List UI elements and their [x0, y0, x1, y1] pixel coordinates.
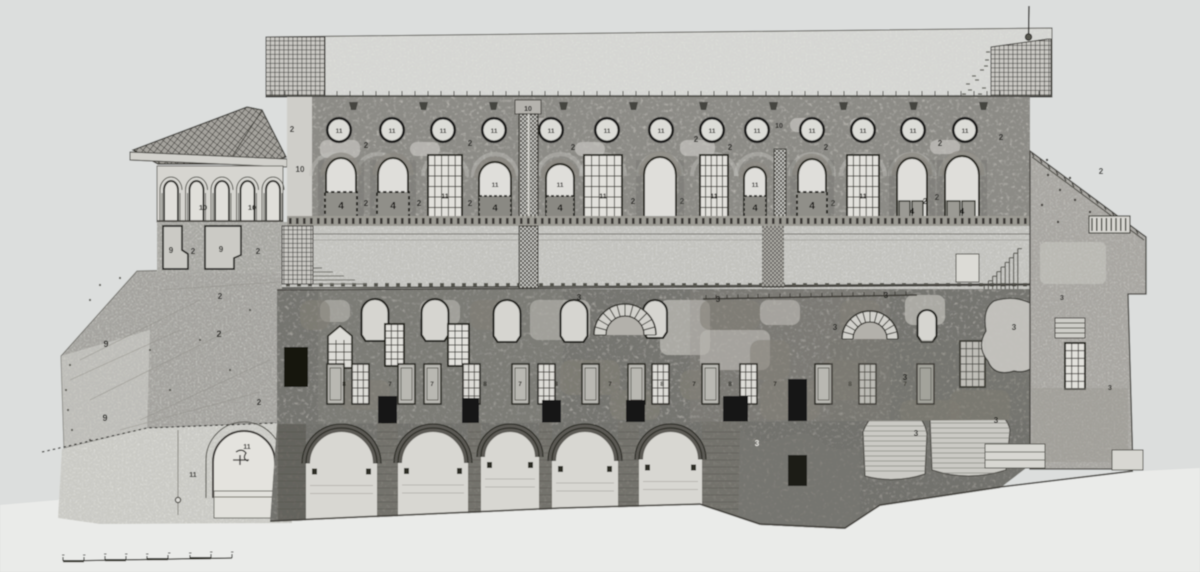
- svg-text:8: 8: [342, 381, 346, 388]
- svg-text:11: 11: [604, 128, 611, 135]
- svg-text:7: 7: [692, 381, 696, 388]
- svg-text:4: 4: [809, 201, 815, 212]
- svg-text:11: 11: [658, 128, 665, 135]
- svg-text:2: 2: [824, 143, 829, 152]
- svg-text:2: 2: [364, 199, 369, 208]
- svg-text:3: 3: [1060, 295, 1064, 302]
- svg-text:3: 3: [1108, 385, 1112, 392]
- svg-text:4: 4: [338, 201, 344, 212]
- svg-text:7: 7: [608, 381, 612, 388]
- svg-text:11: 11: [754, 128, 761, 135]
- svg-text:3: 3: [914, 429, 919, 438]
- svg-text:11: 11: [243, 444, 251, 451]
- svg-text:2: 2: [999, 133, 1004, 142]
- svg-text:8: 8: [728, 381, 732, 388]
- svg-text:4: 4: [752, 203, 758, 214]
- svg-text:7: 7: [773, 381, 777, 388]
- svg-text:3: 3: [577, 293, 582, 302]
- svg-text:3: 3: [884, 291, 889, 300]
- svg-text:2: 2: [728, 143, 733, 152]
- svg-text:2: 2: [923, 197, 928, 206]
- svg-text:11: 11: [491, 128, 498, 135]
- svg-text:3: 3: [903, 373, 908, 382]
- svg-text:10: 10: [524, 106, 532, 113]
- svg-text:11: 11: [441, 194, 449, 201]
- svg-text:2: 2: [571, 143, 576, 152]
- svg-text:4: 4: [492, 203, 498, 214]
- svg-text:2: 2: [631, 197, 636, 206]
- svg-text:11: 11: [548, 128, 555, 135]
- svg-text:11: 11: [710, 194, 718, 201]
- svg-text:3: 3: [994, 416, 999, 425]
- svg-text:11: 11: [962, 128, 969, 135]
- svg-text:2: 2: [257, 398, 262, 407]
- svg-text:11: 11: [859, 194, 867, 201]
- svg-text:3: 3: [716, 295, 721, 304]
- svg-text:10: 10: [199, 203, 207, 212]
- svg-text:9: 9: [169, 246, 174, 255]
- svg-text:7: 7: [430, 381, 434, 388]
- svg-text:4: 4: [960, 206, 965, 216]
- svg-text:3: 3: [833, 323, 838, 332]
- svg-text:11: 11: [752, 182, 759, 189]
- svg-text:3: 3: [755, 439, 760, 448]
- svg-text:10: 10: [775, 123, 783, 130]
- svg-text:7: 7: [388, 381, 392, 388]
- svg-text:8: 8: [483, 381, 487, 388]
- svg-text:10: 10: [296, 165, 305, 174]
- svg-text:8: 8: [660, 381, 664, 388]
- svg-text:2: 2: [468, 199, 473, 208]
- svg-text:2: 2: [290, 125, 295, 134]
- svg-text:2: 2: [216, 329, 221, 339]
- svg-text:2: 2: [218, 292, 223, 301]
- svg-text:3: 3: [1012, 323, 1017, 332]
- svg-text:11: 11: [860, 128, 867, 135]
- svg-text:8: 8: [554, 381, 558, 388]
- svg-text:4: 4: [557, 203, 563, 214]
- svg-text:2: 2: [1099, 167, 1104, 176]
- svg-text:11: 11: [189, 472, 197, 479]
- svg-text:11: 11: [809, 128, 816, 135]
- svg-text:10: 10: [248, 203, 256, 212]
- svg-text:11: 11: [492, 182, 499, 189]
- svg-text:2: 2: [694, 135, 699, 144]
- svg-text:4: 4: [910, 206, 915, 216]
- svg-text:2: 2: [191, 247, 196, 256]
- svg-text:11: 11: [389, 128, 396, 135]
- svg-text:11: 11: [440, 128, 447, 135]
- svg-text:11: 11: [599, 194, 607, 201]
- svg-text:11: 11: [336, 128, 343, 135]
- svg-text:9: 9: [103, 339, 108, 349]
- svg-text:9: 9: [102, 413, 107, 423]
- svg-text:7: 7: [518, 381, 522, 388]
- svg-text:2: 2: [417, 199, 422, 208]
- svg-text:11: 11: [557, 182, 564, 189]
- svg-text:9: 9: [219, 245, 224, 254]
- svg-text:2: 2: [256, 247, 261, 256]
- svg-text:11: 11: [910, 128, 917, 135]
- svg-text:11: 11: [709, 128, 716, 135]
- svg-text:4: 4: [390, 201, 396, 212]
- svg-text:2: 2: [938, 139, 943, 148]
- svg-text:2: 2: [468, 139, 473, 148]
- svg-text:2: 2: [364, 141, 369, 150]
